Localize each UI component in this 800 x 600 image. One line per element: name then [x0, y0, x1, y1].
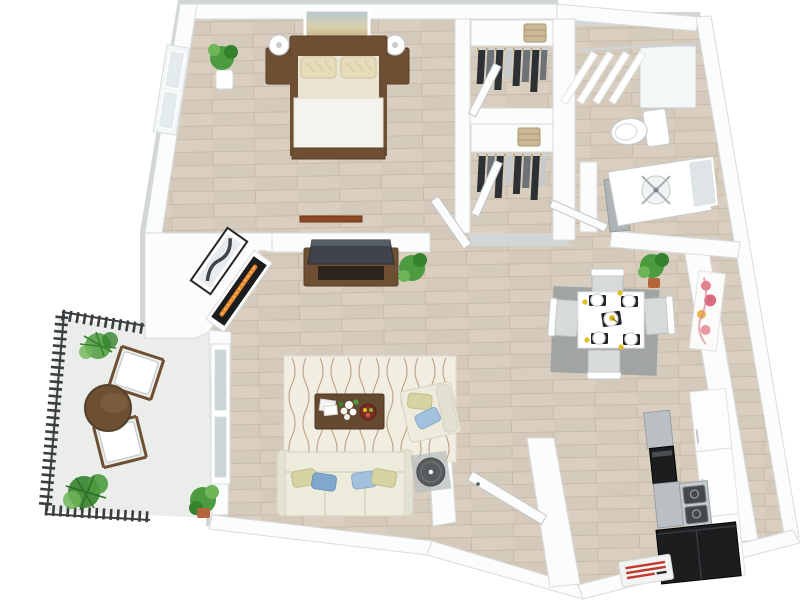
- plate: [591, 294, 603, 306]
- dining-table: [578, 290, 644, 349]
- wall-closet-mid: [470, 108, 553, 124]
- plate: [593, 332, 605, 344]
- duvet-ottoman: [294, 98, 383, 150]
- mirror: [688, 158, 717, 208]
- serving-bowl: [360, 404, 376, 420]
- sofa: [277, 450, 413, 516]
- dining-chair: [644, 296, 676, 336]
- pillow: [341, 57, 376, 78]
- storage-basket: [524, 24, 546, 42]
- side-table: [410, 451, 451, 494]
- wall-shelf: [300, 216, 362, 222]
- sliding-glass-door: [211, 344, 230, 484]
- wall-closet-west: [455, 19, 470, 233]
- floor-plan-canvas: [0, 0, 800, 600]
- balcony: [45, 312, 213, 520]
- throw-pillow: [311, 472, 337, 491]
- throw-pillow: [407, 393, 432, 410]
- armchair: [400, 381, 462, 443]
- cooktop-sink-unit: [679, 481, 711, 528]
- pillow: [301, 57, 336, 78]
- plate: [623, 295, 635, 307]
- storage-basket: [518, 128, 540, 146]
- shelf: [471, 124, 553, 152]
- bistro-table: [85, 385, 131, 431]
- tv-console: [304, 240, 398, 286]
- dining-chair: [587, 350, 621, 379]
- coffee-table: [315, 394, 384, 429]
- floor-plan-image: [0, 0, 800, 600]
- dining-chair: [548, 298, 580, 338]
- dining-chair: [591, 269, 624, 293]
- throw-pillow: [371, 468, 397, 488]
- upper-cabinet: [653, 482, 683, 528]
- double-bed: [290, 36, 387, 159]
- plate: [625, 333, 637, 345]
- upper-cabinet: [644, 410, 674, 449]
